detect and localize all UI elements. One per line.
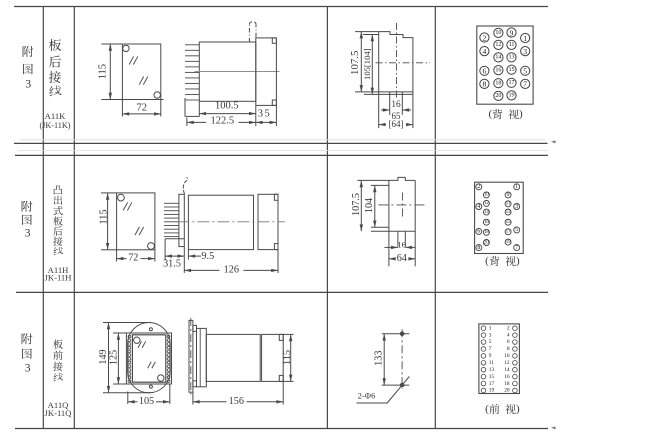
svg-text:11: 11 <box>509 42 515 48</box>
svg-text:(: ( <box>488 108 492 120</box>
svg-text:1: 1 <box>523 34 527 43</box>
svg-text:20: 20 <box>484 240 489 245</box>
svg-text:13: 13 <box>506 210 511 215</box>
svg-text:156: 156 <box>229 396 244 407</box>
svg-text:115: 115 <box>282 350 293 365</box>
svg-text:17: 17 <box>508 80 514 86</box>
svg-text:20: 20 <box>504 388 510 394</box>
svg-text:6: 6 <box>507 339 510 345</box>
svg-text:15: 15 <box>506 220 511 225</box>
svg-text:15: 15 <box>508 67 514 73</box>
svg-text:19: 19 <box>489 388 495 394</box>
svg-text:20: 20 <box>495 93 501 99</box>
svg-text:13: 13 <box>489 367 495 373</box>
svg-text:7: 7 <box>489 346 492 352</box>
svg-text:5: 5 <box>515 227 518 233</box>
svg-text:10: 10 <box>484 193 489 198</box>
svg-text:19: 19 <box>506 240 511 245</box>
svg-text:13: 13 <box>508 55 514 61</box>
svg-text:3: 3 <box>523 47 527 56</box>
svg-text:2: 2 <box>477 184 480 190</box>
svg-text:16: 16 <box>484 220 489 225</box>
svg-text:3: 3 <box>489 332 492 338</box>
svg-text:16: 16 <box>397 240 406 250</box>
svg-text:1: 1 <box>489 325 492 331</box>
svg-text:6: 6 <box>477 229 480 235</box>
svg-text:12: 12 <box>484 201 489 206</box>
svg-text:(JK-11K): (JK-11K) <box>39 121 70 130</box>
svg-text:(: ( <box>485 403 489 415</box>
svg-text:17: 17 <box>506 230 511 235</box>
svg-text:107.5: 107.5 <box>349 51 361 75</box>
svg-text:126: 126 <box>224 265 239 276</box>
svg-text:64: 64 <box>397 253 407 264</box>
svg-text:122.5: 122.5 <box>210 116 234 127</box>
svg-text:11: 11 <box>489 360 494 366</box>
svg-text:100.5: 100.5 <box>215 101 239 112</box>
svg-text:115: 115 <box>98 64 109 79</box>
svg-text:104: 104 <box>364 198 375 213</box>
svg-text:15: 15 <box>489 374 495 380</box>
svg-text:6: 6 <box>483 67 487 76</box>
svg-text:9: 9 <box>510 28 514 37</box>
svg-text:4: 4 <box>483 47 487 56</box>
svg-text:72: 72 <box>128 253 138 264</box>
svg-text:[64]: [64] <box>389 119 404 129</box>
svg-text:9: 9 <box>489 353 492 359</box>
svg-text:18: 18 <box>504 381 510 387</box>
svg-text:2: 2 <box>507 325 510 331</box>
svg-text:2: 2 <box>483 33 487 42</box>
svg-text:8: 8 <box>483 80 487 89</box>
svg-text:1: 1 <box>515 184 518 190</box>
svg-text:): ) <box>519 108 523 120</box>
svg-text:16: 16 <box>495 67 501 73</box>
svg-text:14: 14 <box>484 210 489 215</box>
svg-text:125: 125 <box>108 350 119 365</box>
svg-text:A11K: A11K <box>45 111 66 121</box>
svg-text:14: 14 <box>504 367 510 373</box>
svg-text:10: 10 <box>504 353 510 359</box>
svg-text:9.5: 9.5 <box>201 251 214 262</box>
svg-text:2-Φ6: 2-Φ6 <box>358 391 376 401</box>
svg-text:105[104]: 105[104] <box>362 48 372 80</box>
svg-text:9: 9 <box>507 192 510 198</box>
svg-text:JK-11Q: JK-11Q <box>45 408 73 418</box>
svg-text:18: 18 <box>484 230 489 235</box>
svg-text:5: 5 <box>489 339 492 345</box>
svg-text:105: 105 <box>139 396 154 407</box>
svg-text:): ) <box>516 403 520 415</box>
svg-text:3: 3 <box>25 79 31 91</box>
svg-text:3: 3 <box>515 204 518 210</box>
svg-text:35: 35 <box>258 109 272 120</box>
svg-text:31.5: 31.5 <box>163 258 181 269</box>
svg-text:3: 3 <box>25 362 31 374</box>
svg-text:8: 8 <box>477 245 480 251</box>
svg-text:4: 4 <box>507 332 510 338</box>
svg-text:16: 16 <box>504 374 510 380</box>
svg-text:11: 11 <box>506 202 511 207</box>
svg-text:7: 7 <box>515 245 518 251</box>
svg-text:5: 5 <box>523 67 527 76</box>
svg-text:10: 10 <box>495 30 501 36</box>
svg-text:107.5: 107.5 <box>351 193 362 216</box>
svg-text:12: 12 <box>504 360 510 366</box>
svg-text:JK-11H: JK-11H <box>45 273 72 283</box>
svg-text:12: 12 <box>495 42 501 48</box>
svg-text:133: 133 <box>373 351 384 366</box>
svg-text:4: 4 <box>477 204 480 210</box>
svg-text:19: 19 <box>508 93 514 99</box>
svg-text:3: 3 <box>25 227 31 239</box>
svg-text:14: 14 <box>495 55 501 61</box>
svg-text:18: 18 <box>495 81 501 87</box>
svg-text:16: 16 <box>391 100 401 110</box>
svg-text:115: 115 <box>99 210 110 225</box>
svg-text:17: 17 <box>489 381 495 387</box>
svg-text:): ) <box>516 255 520 267</box>
svg-text:(: ( <box>485 255 489 267</box>
svg-text:72: 72 <box>137 103 148 114</box>
svg-text:7: 7 <box>523 80 527 89</box>
svg-text:8: 8 <box>507 346 510 352</box>
